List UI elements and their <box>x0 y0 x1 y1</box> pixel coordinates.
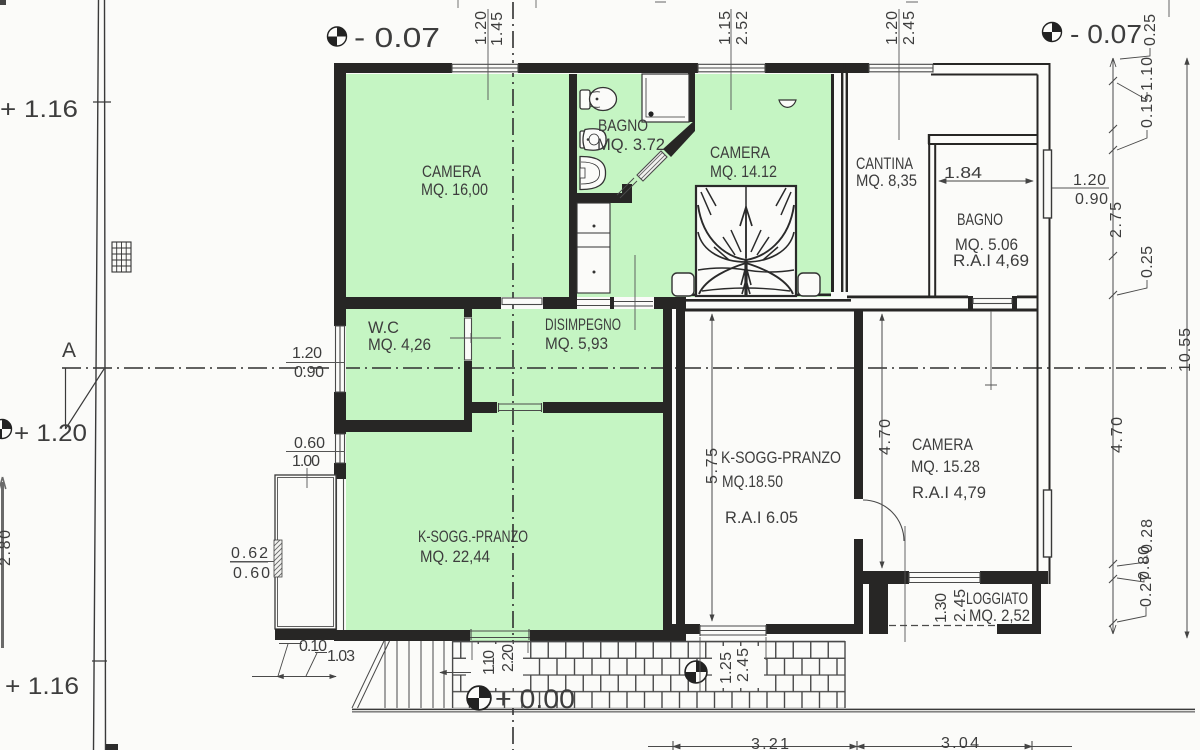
svg-text:- 0.07: - 0.07 <box>354 22 440 53</box>
svg-text:+ 0.00: + 0.00 <box>495 684 575 714</box>
svg-text:CAMERA: CAMERA <box>912 435 974 454</box>
svg-text:1.03: 1.03 <box>327 648 355 665</box>
svg-text:1.84: 1.84 <box>944 165 982 182</box>
svg-text:4.70: 4.70 <box>877 419 894 455</box>
svg-text:+ 1.16: + 1.16 <box>5 673 79 700</box>
svg-text:2.52: 2.52 <box>734 11 751 45</box>
svg-text:1.00: 1.00 <box>292 453 320 470</box>
svg-text:K-SOGG.-PRANZO: K-SOGG.-PRANZO <box>418 527 528 546</box>
svg-text:MQ. 16,00: MQ. 16,00 <box>421 180 488 199</box>
svg-text:2.80: 2.80 <box>0 530 14 566</box>
svg-text:MQ. 2,52: MQ. 2,52 <box>969 606 1030 625</box>
svg-text:1.20: 1.20 <box>292 345 322 362</box>
svg-text:2.75: 2.75 <box>1108 202 1125 238</box>
svg-text:0.60: 0.60 <box>294 435 325 452</box>
svg-text:3.04: 3.04 <box>941 735 979 750</box>
svg-text:5.75: 5.75 <box>704 448 721 484</box>
svg-text:R.A.I 4,69: R.A.I 4,69 <box>953 251 1029 270</box>
svg-text:CAMERA: CAMERA <box>710 143 771 162</box>
svg-text:2.20: 2.20 <box>500 644 517 672</box>
svg-text:BAGNO: BAGNO <box>598 116 648 135</box>
svg-text:0.10: 0.10 <box>299 638 327 655</box>
svg-text:+ 1.16: + 1.16 <box>0 96 78 123</box>
svg-text:0.27: 0.27 <box>1138 573 1155 607</box>
svg-text:1.25: 1.25 <box>718 652 735 684</box>
svg-text:BAGNO: BAGNO <box>957 210 1003 229</box>
svg-text:1.10: 1.10 <box>481 650 498 675</box>
svg-text:MQ.18.50: MQ.18.50 <box>722 472 783 491</box>
svg-text:DISIMPEGNO: DISIMPEGNO <box>545 315 621 334</box>
svg-text:3.21: 3.21 <box>751 736 789 750</box>
svg-text:1.10: 1.10 <box>1139 57 1156 91</box>
svg-text:MQ. 8,35: MQ. 8,35 <box>856 171 917 190</box>
svg-text:4.70: 4.70 <box>1109 417 1126 453</box>
svg-text:0.60: 0.60 <box>233 565 270 582</box>
svg-text:1.45: 1.45 <box>489 12 506 46</box>
svg-text:MQ. 5,93: MQ. 5,93 <box>545 334 608 353</box>
svg-text:2.45: 2.45 <box>735 648 752 682</box>
svg-text:MQ. 4,26: MQ. 4,26 <box>368 335 431 354</box>
svg-text:2.45: 2.45 <box>901 11 918 45</box>
svg-text:MQ. 22,44: MQ. 22,44 <box>420 547 490 566</box>
svg-text:MQ. 14.12: MQ. 14.12 <box>710 162 777 181</box>
svg-text:- 0.07: - 0.07 <box>1070 19 1142 49</box>
svg-text:2.45: 2.45 <box>952 589 969 622</box>
svg-text:0.90: 0.90 <box>294 364 324 381</box>
svg-text:1.30: 1.30 <box>933 593 950 623</box>
svg-text:1.20: 1.20 <box>884 11 901 45</box>
svg-text:0.90: 0.90 <box>1075 191 1108 208</box>
svg-text:MQ. 15.28: MQ. 15.28 <box>911 457 980 476</box>
svg-text:1.15: 1.15 <box>717 11 734 45</box>
svg-text:MQ. 3.72: MQ. 3.72 <box>597 135 665 154</box>
svg-text:K-SOGG-PRANZO: K-SOGG-PRANZO <box>721 448 841 467</box>
svg-text:0.15: 0.15 <box>1139 94 1156 128</box>
svg-text:A: A <box>62 339 76 362</box>
svg-text:+ 1.20: + 1.20 <box>14 420 87 447</box>
svg-text:0.25: 0.25 <box>1139 246 1156 278</box>
svg-text:CAMERA: CAMERA <box>422 162 482 181</box>
svg-text:1.20: 1.20 <box>473 11 490 45</box>
svg-text:0.62: 0.62 <box>231 545 268 562</box>
svg-text:0.25: 0.25 <box>1142 14 1159 46</box>
svg-text:1.20: 1.20 <box>1073 172 1106 189</box>
svg-text:10.55: 10.55 <box>1177 328 1194 372</box>
svg-text:R.A.I 4,79: R.A.I 4,79 <box>912 483 986 502</box>
svg-text:R.A.I 6.05: R.A.I 6.05 <box>725 508 798 527</box>
